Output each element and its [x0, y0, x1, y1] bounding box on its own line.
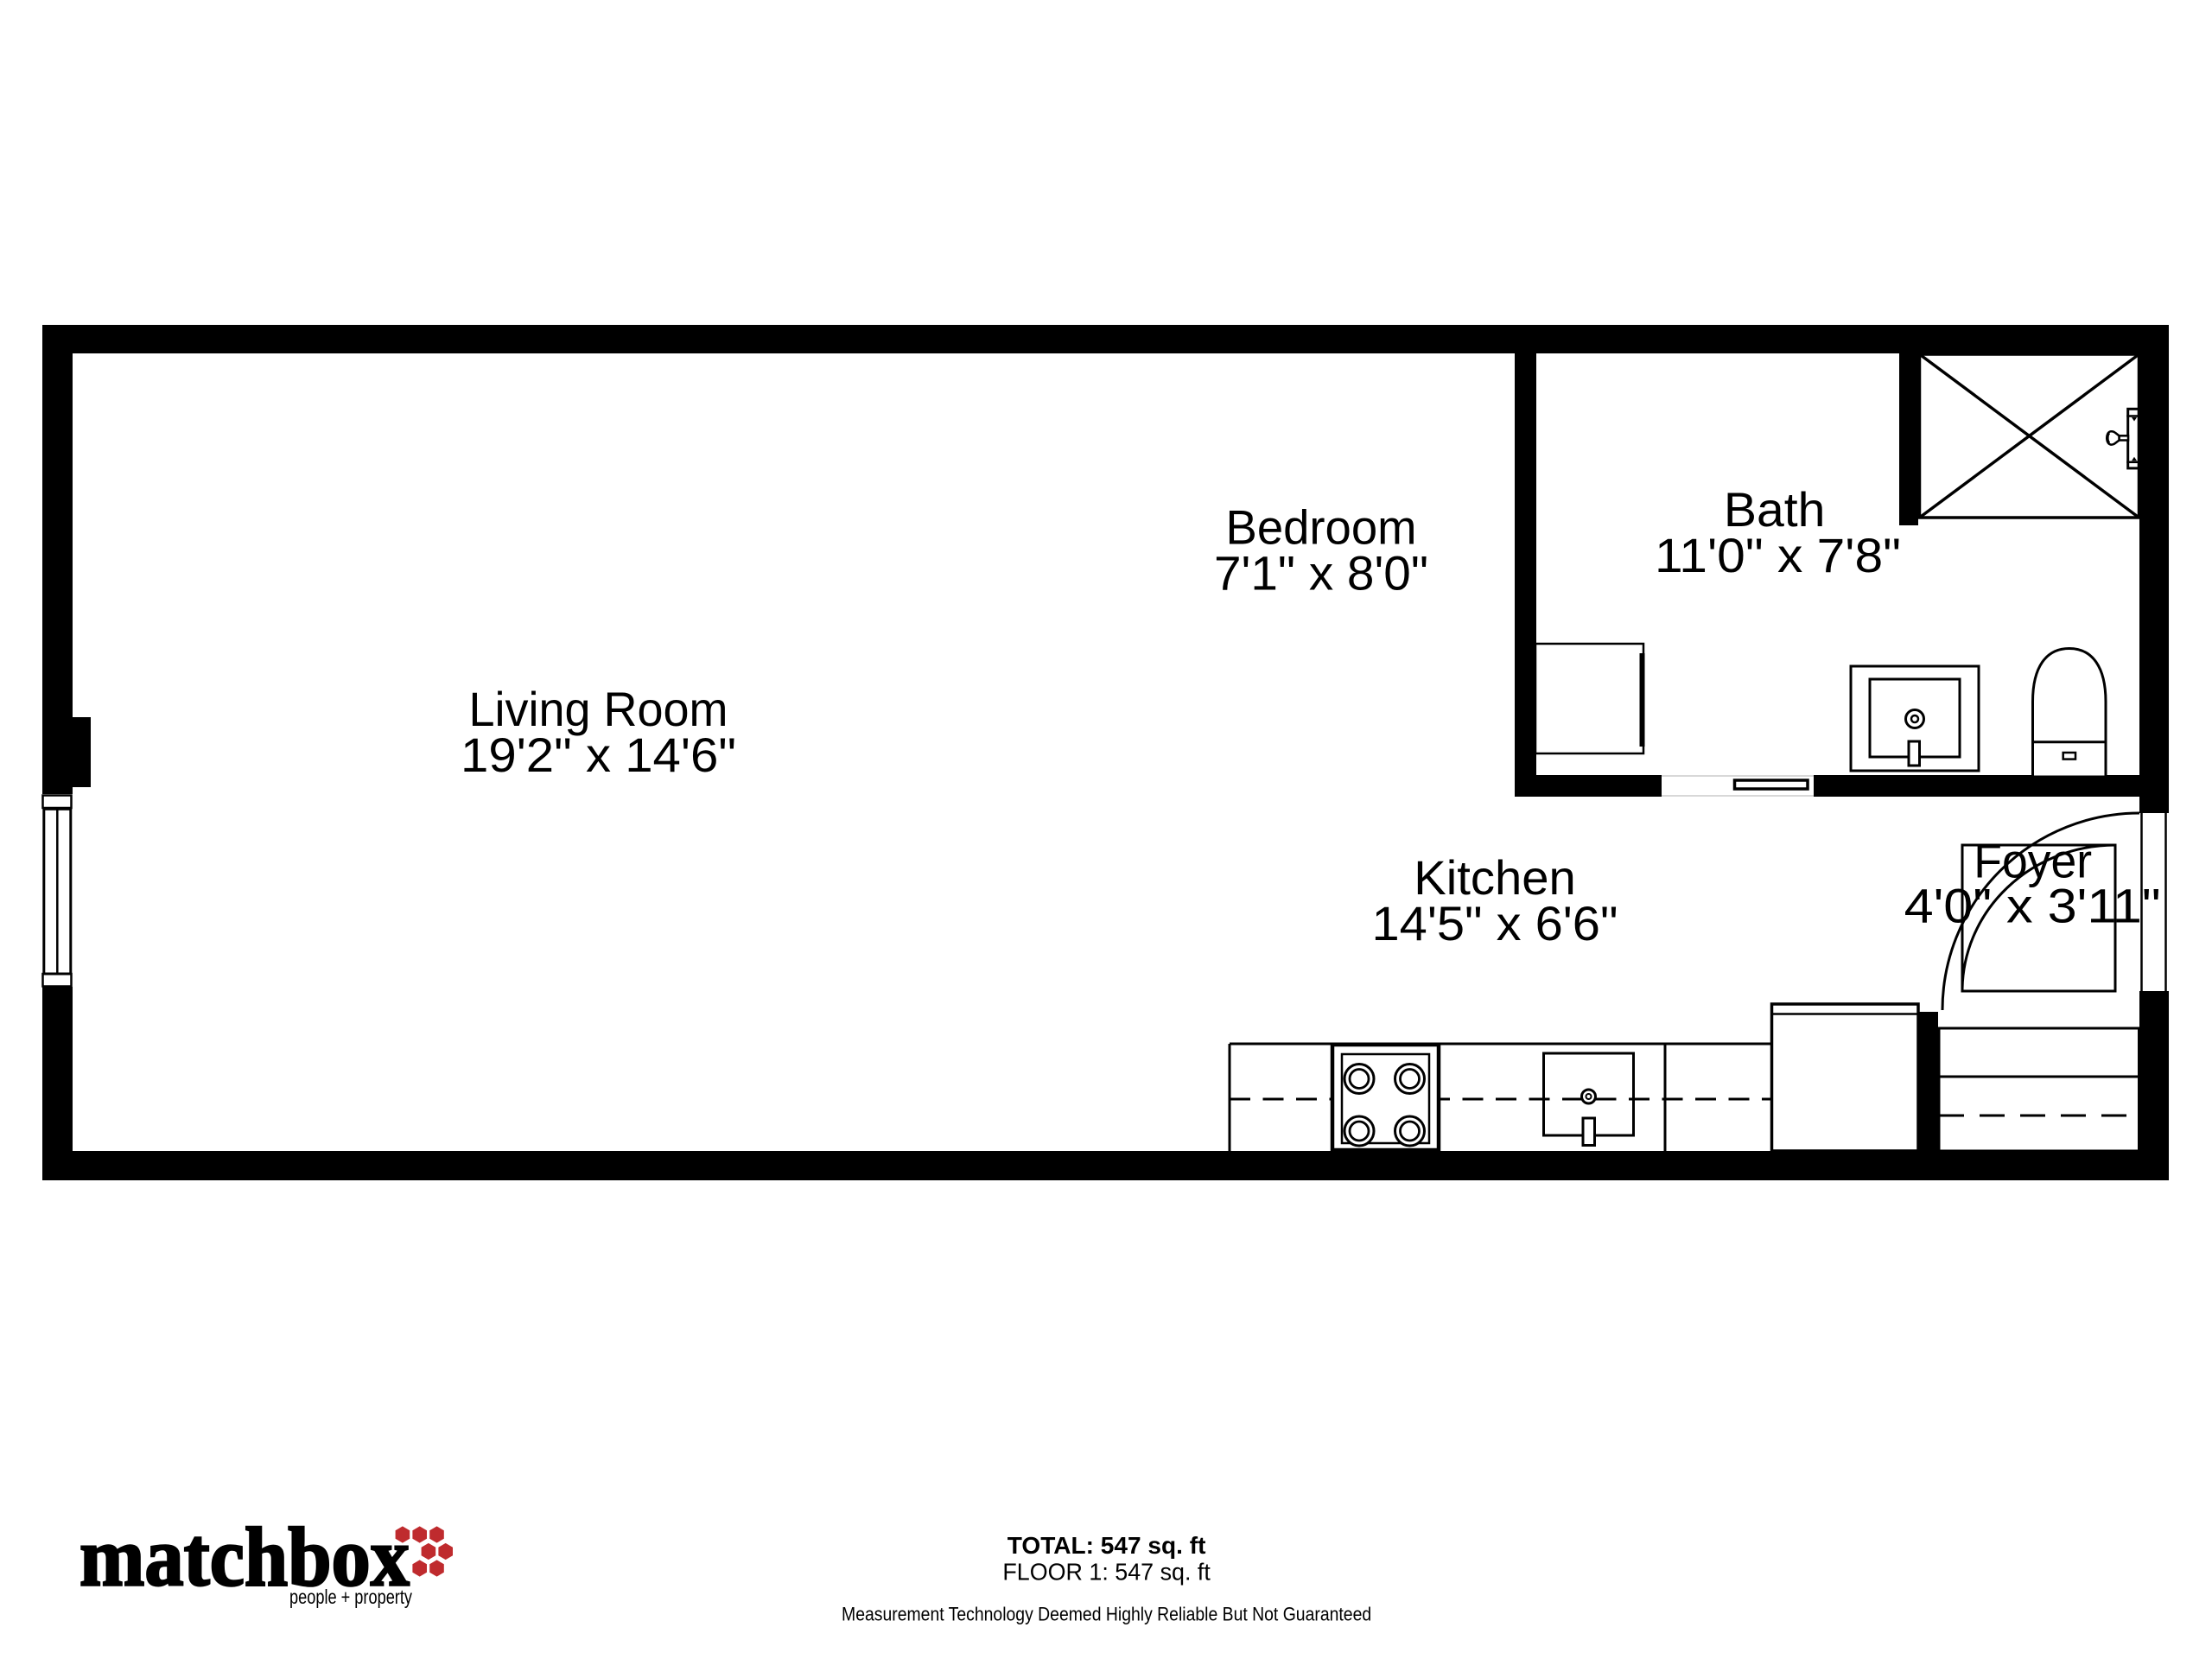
svg-text:19'2" x 14'6": 19'2" x 14'6": [461, 728, 736, 782]
svg-text:TOTAL: 547 sq. ft: TOTAL: 547 sq. ft: [1007, 1532, 1206, 1559]
svg-text:11'0" x 7'8": 11'0" x 7'8": [1655, 528, 1901, 582]
svg-text:people + property: people + property: [289, 1586, 412, 1608]
svg-text:14'5" x 6'6": 14'5" x 6'6": [1372, 896, 1618, 950]
svg-text:Measurement Technology Deemed: Measurement Technology Deemed Highly Rel…: [842, 1604, 1371, 1625]
svg-text:7'1" x 8'0": 7'1" x 8'0": [1214, 545, 1428, 600]
svg-text:FLOOR 1: 547 sq. ft: FLOOR 1: 547 sq. ft: [1002, 1559, 1211, 1586]
svg-text:4'0" x 3'11": 4'0" x 3'11": [1904, 879, 2161, 933]
